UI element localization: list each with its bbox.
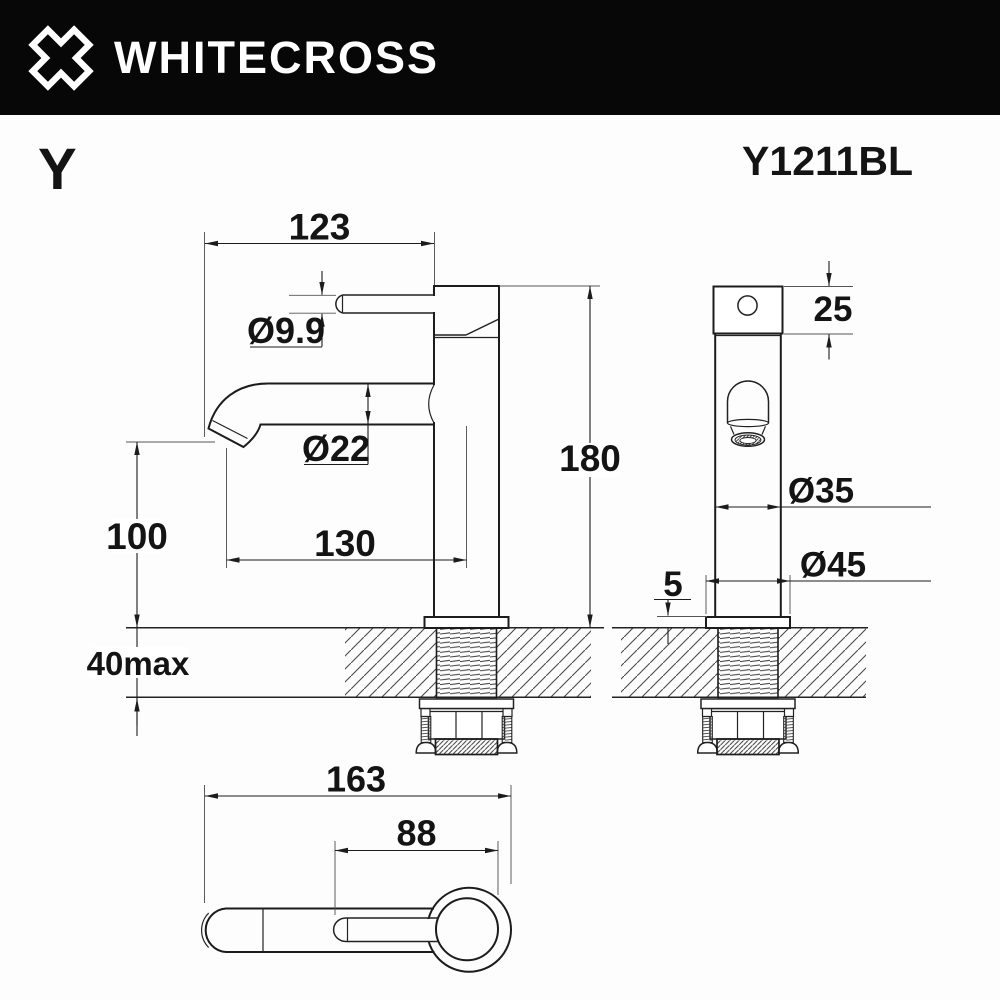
dim-label-body-dia: Ø35: [788, 472, 854, 511]
dim-label-handle-stem-dia: Ø9.9: [247, 310, 325, 351]
dim-cap-height: 25: [784, 261, 853, 360]
dim-spout-height: 100: [106, 442, 215, 628]
dim-label-deck-thickness: 40max: [87, 645, 190, 682]
threaded-shank: [718, 628, 778, 698]
series-label: Y: [38, 137, 77, 202]
threaded-shank: [437, 628, 497, 698]
countertop-section: [345, 629, 437, 698]
body-circle: [436, 898, 498, 960]
lever-handle: [336, 295, 434, 313]
side-view: [612, 287, 868, 755]
dim-overall-height: 180: [499, 286, 621, 628]
dim-handle-stem-dia: Ø9.9: [247, 271, 336, 351]
dim-overall-depth: 163: [205, 759, 512, 904]
spout-outlet-face: [213, 421, 248, 439]
dim-label-base-plate-thickness: 5: [663, 565, 682, 604]
top-view: [202, 888, 511, 972]
dim-label-spout-dia: Ø22: [302, 428, 370, 469]
spout-top: [202, 909, 434, 953]
dim-body-dia: Ø35: [716, 472, 932, 511]
brand-name: WHITECROSS: [114, 32, 439, 84]
dim-deck-thickness: 40max: [87, 628, 190, 736]
dim-label-spout-height: 100: [106, 516, 168, 557]
dim-spout-dia: Ø22: [302, 384, 370, 469]
dim-base-dia: Ø45: [706, 546, 931, 615]
spec-sheet-page: WHITECROSS: [0, 0, 1000, 1000]
dim-label-base-dia: Ø45: [800, 546, 866, 585]
dim-label-handle-length: 88: [396, 813, 436, 854]
model-number: Y1211BL: [742, 138, 913, 184]
aerator: [728, 381, 769, 446]
lever-pivot-pin: [738, 296, 757, 315]
base-plate: [706, 617, 790, 628]
front-view: [126, 286, 604, 755]
countertop-section: [497, 629, 592, 698]
dim-label-overall-height: 180: [559, 438, 621, 479]
dim-label-cap-height: 25: [814, 290, 853, 329]
dim-label-overall-depth: 163: [326, 759, 386, 800]
countertop-section: [621, 629, 718, 698]
countertop-section: [778, 629, 866, 698]
mounting-hardware: [416, 699, 517, 755]
base-plate: [425, 617, 509, 628]
dim-label-spout-offset: 130: [314, 523, 376, 564]
technical-drawing: Y Y1211BL: [0, 0, 1000, 1000]
brand-header: WHITECROSS: [0, 0, 1000, 115]
dim-label-spout-reach: 123: [289, 207, 351, 248]
whitecross-x-logo: [24, 21, 98, 95]
handle-top: [334, 918, 438, 942]
mounting-hardware: [698, 699, 799, 755]
